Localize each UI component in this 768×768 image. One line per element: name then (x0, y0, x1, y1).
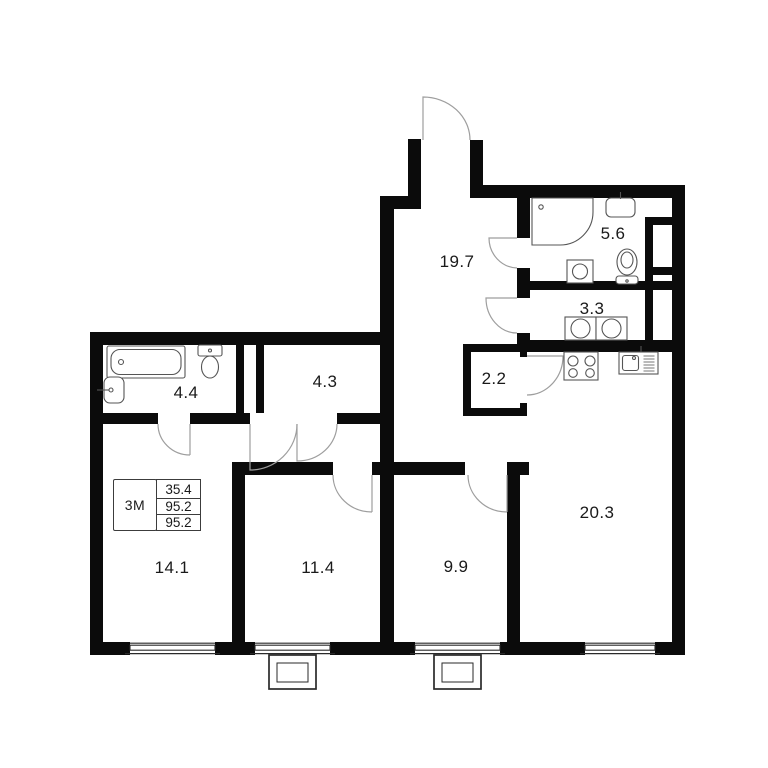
unit-info-box: 3M 35.4 95.2 95.2 (113, 479, 201, 531)
washing-machine-icon (567, 260, 593, 283)
laundry-door-icon (486, 298, 517, 333)
unit-type-label: 3M (113, 479, 157, 531)
fixtures (97, 192, 658, 403)
room-label-hallway: 19.7 (440, 252, 475, 272)
ac-basket-icon (434, 655, 481, 689)
room-label-bedroom-1: 14.1 (155, 558, 190, 578)
wardrobe-door-icon (297, 424, 337, 461)
window-icon (410, 643, 505, 653)
room-label-bathroom: 5.6 (601, 224, 626, 244)
bathtub-icon (107, 346, 185, 378)
toilet-icon (198, 345, 222, 378)
bathroom2-door-icon (158, 424, 190, 455)
unit-area-main: 95.2 (156, 498, 201, 515)
bathroom-door-icon (489, 238, 517, 268)
unit-area-total: 95.2 (156, 514, 201, 531)
unit-area-living: 35.4 (156, 479, 201, 499)
room-label-bedroom-2: 11.4 (301, 558, 334, 578)
washer-dryer-icon (565, 317, 627, 340)
room-label-laundry: 3.3 (580, 299, 605, 319)
toilet-icon (616, 249, 638, 284)
shower-icon (532, 198, 593, 245)
window-icon (125, 643, 220, 653)
ac-units (269, 655, 481, 689)
window-icon (580, 643, 660, 653)
stove-icon (564, 352, 598, 380)
bedroom2-door-icon (333, 475, 372, 512)
window-icon (250, 643, 335, 653)
door-swings (158, 97, 563, 512)
storage-door-icon (527, 356, 563, 395)
room-label-storage: 2.2 (482, 369, 507, 389)
room-label-bedroom-3: 9.9 (444, 557, 469, 577)
bedroom3-door-icon (468, 475, 507, 512)
floor-plan-drawing (0, 0, 768, 768)
floor-plan: 19.7 5.6 3.3 2.2 4.4 4.3 14.1 11.4 9.9 2… (0, 0, 768, 768)
room-label-bathroom-2: 4.4 (174, 383, 199, 403)
entrance-door-icon (423, 97, 470, 140)
room-label-kitchen-living: 20.3 (580, 503, 615, 523)
room-label-wardrobe: 4.3 (313, 372, 338, 392)
ac-basket-icon (269, 655, 316, 689)
